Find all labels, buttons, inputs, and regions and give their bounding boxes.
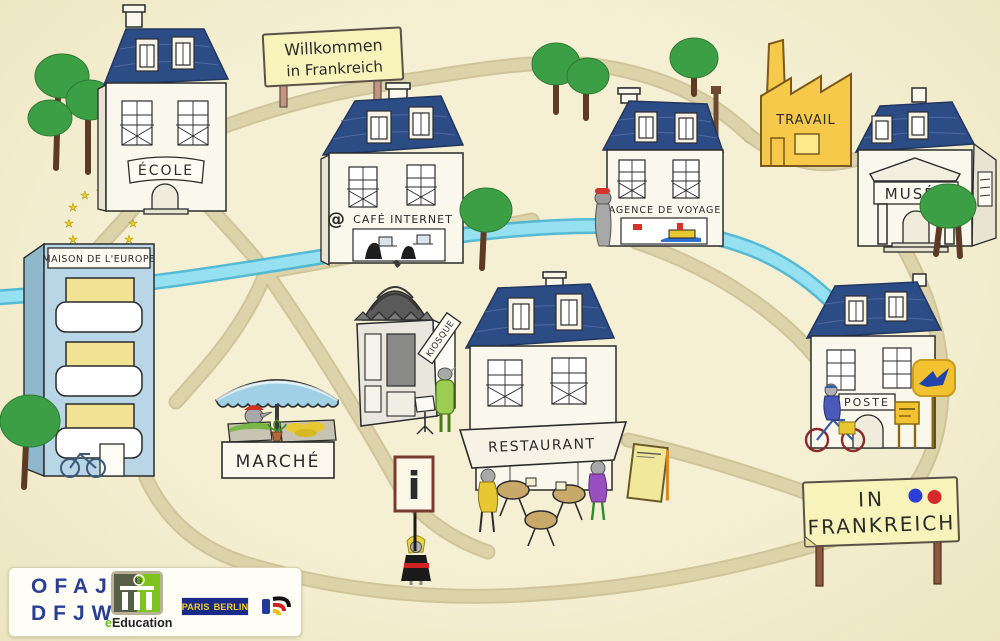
marche-label: MARCHÉ bbox=[236, 450, 321, 472]
agence-display-window bbox=[621, 218, 707, 244]
poste-label: POSTE bbox=[844, 396, 890, 409]
restaurant-window-right bbox=[550, 358, 588, 404]
agence-window-left bbox=[617, 160, 647, 198]
tree-musee bbox=[908, 178, 1000, 264]
restaurant-window-left bbox=[486, 360, 524, 406]
musee-column-left bbox=[878, 204, 887, 244]
ecole-window-right bbox=[176, 101, 210, 145]
flag-blue-part bbox=[262, 599, 270, 614]
cafe-internet-label: CAFÉ INTERNET bbox=[353, 213, 453, 226]
diner-yellow bbox=[478, 469, 497, 532]
svg-text:@: @ bbox=[136, 577, 143, 585]
eeducation-label: eEducation bbox=[105, 616, 169, 630]
market-vendor-mouse bbox=[244, 405, 272, 424]
ecole-door bbox=[152, 184, 178, 211]
at-icon: @ bbox=[327, 209, 345, 230]
frankreich-sign-line1: IN bbox=[858, 487, 886, 512]
french-german-flag-logo[interactable] bbox=[261, 594, 295, 618]
svg-text:★: ★ bbox=[128, 217, 138, 230]
restaurant-roof bbox=[466, 284, 614, 348]
location-poste[interactable]: POSTE bbox=[795, 272, 965, 468]
location-agence-de-voyage[interactable]: AGENCE DE VOYAGE bbox=[595, 88, 730, 252]
poste-roof bbox=[807, 282, 941, 338]
kiosque-window bbox=[387, 334, 415, 386]
eeducation-logo[interactable]: @ eEducation bbox=[105, 571, 169, 630]
paris-label: PARIS bbox=[182, 602, 210, 612]
market-crates bbox=[228, 420, 336, 442]
svg-text:★: ★ bbox=[80, 189, 90, 202]
tree-cafe bbox=[450, 178, 530, 278]
location-kiosque[interactable]: KIOSQUE bbox=[333, 258, 463, 436]
ship-illustration bbox=[669, 230, 695, 238]
frankreich-sign: IN FRANKREICH bbox=[798, 472, 968, 590]
agence-window-right bbox=[671, 160, 701, 198]
poste-door bbox=[853, 415, 883, 448]
location-cafe-internet[interactable]: @ CAFÉ INTERNET bbox=[313, 83, 473, 268]
ecole-roof bbox=[104, 29, 228, 85]
location-marche[interactable]: MARCHÉ bbox=[202, 358, 352, 483]
diner-purple bbox=[589, 461, 607, 520]
girl-character bbox=[401, 515, 431, 585]
location-ecole[interactable]: ÉCOLE bbox=[90, 5, 240, 215]
tree-maison bbox=[0, 385, 80, 495]
eeducation-gate-icon: @ bbox=[111, 571, 163, 615]
location-restaurant[interactable]: RESTAURANT bbox=[452, 272, 672, 562]
location-travail[interactable]: TRAVAIL bbox=[733, 32, 858, 172]
cat-character bbox=[595, 188, 611, 246]
factory-window bbox=[795, 134, 819, 154]
cafe-storefront bbox=[353, 229, 445, 261]
agence-de-voyage-label: AGENCE DE VOYAGE bbox=[609, 205, 722, 216]
info-sign-letter: i bbox=[407, 464, 420, 508]
ecole-label: ÉCOLE bbox=[138, 162, 194, 179]
cafe-window-right bbox=[405, 165, 437, 205]
logo-bar: OFAJ DFJW @ eEducation PARIS BERLIN bbox=[8, 567, 302, 637]
paris-berlin-logo[interactable]: PARIS BERLIN bbox=[181, 597, 249, 616]
maison-de-leurope-label: MAISON DE L'EUROPE bbox=[42, 254, 155, 265]
berlin-label: BERLIN bbox=[214, 602, 249, 612]
cafe-roof bbox=[323, 96, 463, 155]
maison-window-1 bbox=[56, 278, 142, 332]
svg-text:★: ★ bbox=[64, 217, 74, 230]
ecole-window-left bbox=[120, 101, 154, 145]
agence-roof bbox=[603, 101, 723, 152]
menu-board bbox=[627, 444, 673, 502]
info-sign: i bbox=[395, 457, 433, 511]
travail-label: TRAVAIL bbox=[775, 113, 836, 128]
info-sign-girl[interactable]: i bbox=[385, 455, 460, 585]
flag-gold-band bbox=[273, 611, 279, 615]
cafe-window-left bbox=[347, 167, 379, 207]
poste-window-right bbox=[883, 348, 911, 388]
svg-text:★: ★ bbox=[68, 201, 78, 214]
